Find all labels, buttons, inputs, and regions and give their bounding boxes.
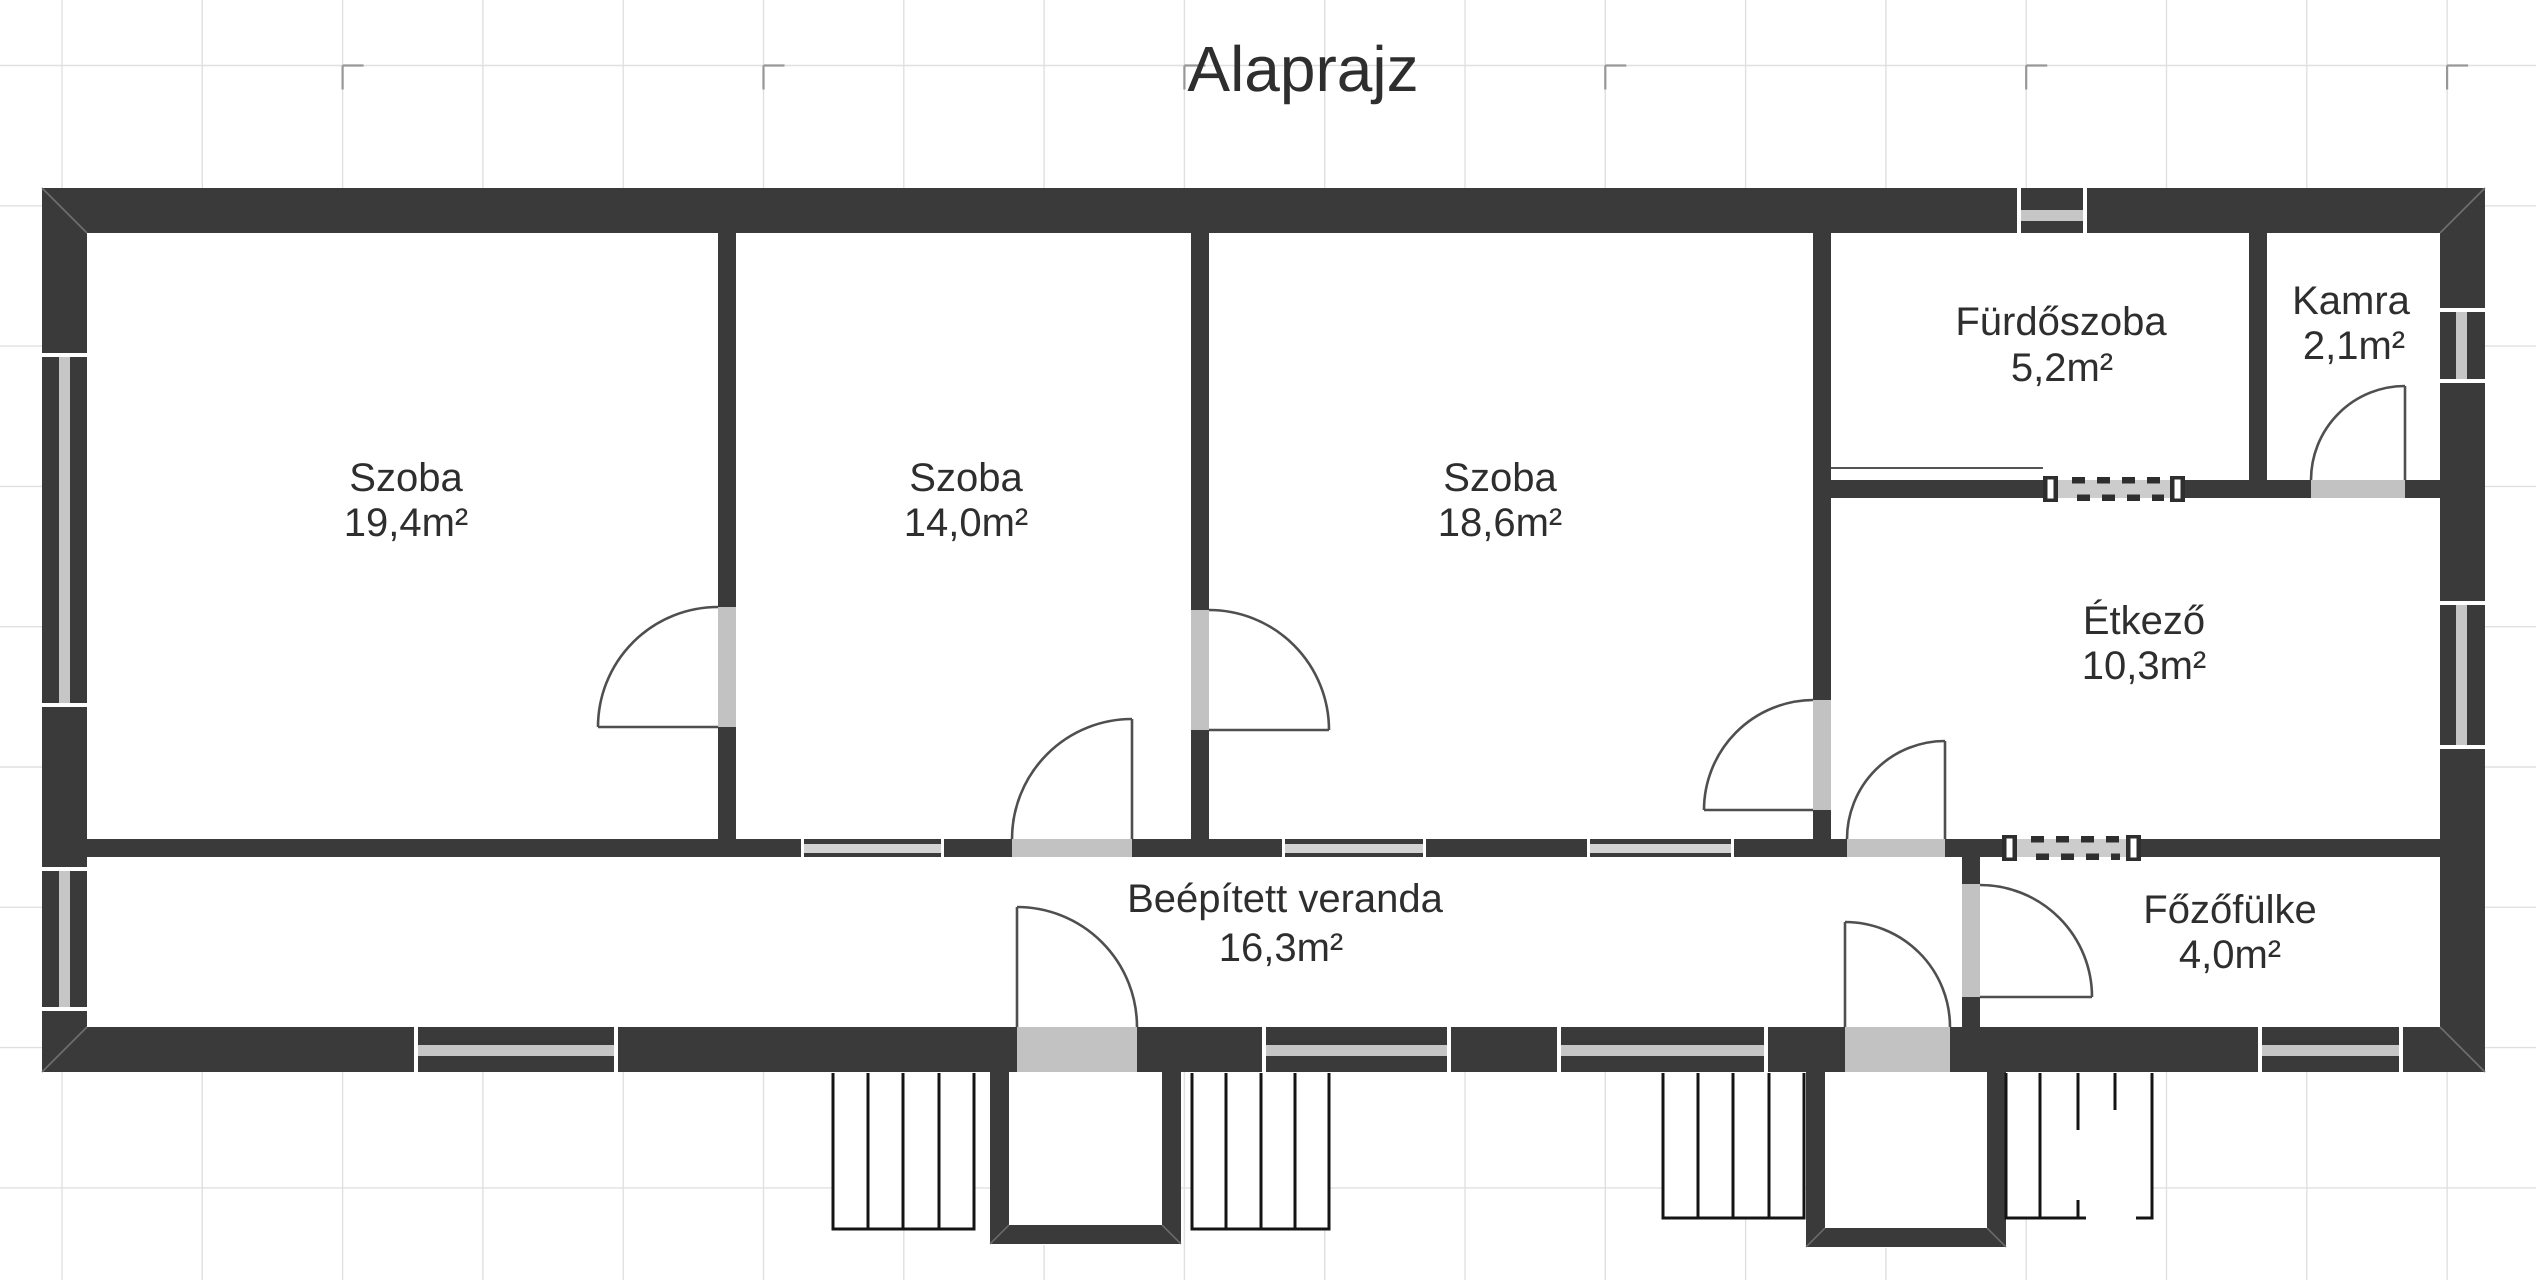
svg-text:16,3m²: 16,3m²: [1219, 926, 1344, 970]
svg-text:14,0m²: 14,0m²: [904, 501, 1029, 545]
svg-text:Beépített veranda: Beépített veranda: [1127, 877, 1444, 921]
svg-text:19,4m²: 19,4m²: [344, 501, 469, 545]
svg-text:Főzőfülke: Főzőfülke: [2143, 888, 2316, 932]
svg-text:Fürdőszoba: Fürdőszoba: [1955, 300, 2167, 344]
svg-text:Alaprajz: Alaprajz: [1187, 33, 1418, 105]
svg-text:Szoba: Szoba: [909, 456, 1023, 500]
svg-text:18,6m²: 18,6m²: [1438, 501, 1563, 545]
svg-text:4,0m²: 4,0m²: [2179, 933, 2281, 977]
svg-text:Kamra: Kamra: [2292, 279, 2411, 323]
svg-text:10,3m²: 10,3m²: [2082, 644, 2207, 688]
svg-text:Étkező: Étkező: [2083, 599, 2205, 643]
svg-text:Szoba: Szoba: [349, 456, 463, 500]
svg-text:Szoba: Szoba: [1443, 456, 1557, 500]
svg-text:2,1m²: 2,1m²: [2303, 324, 2405, 368]
svg-text:5,2m²: 5,2m²: [2011, 346, 2113, 390]
